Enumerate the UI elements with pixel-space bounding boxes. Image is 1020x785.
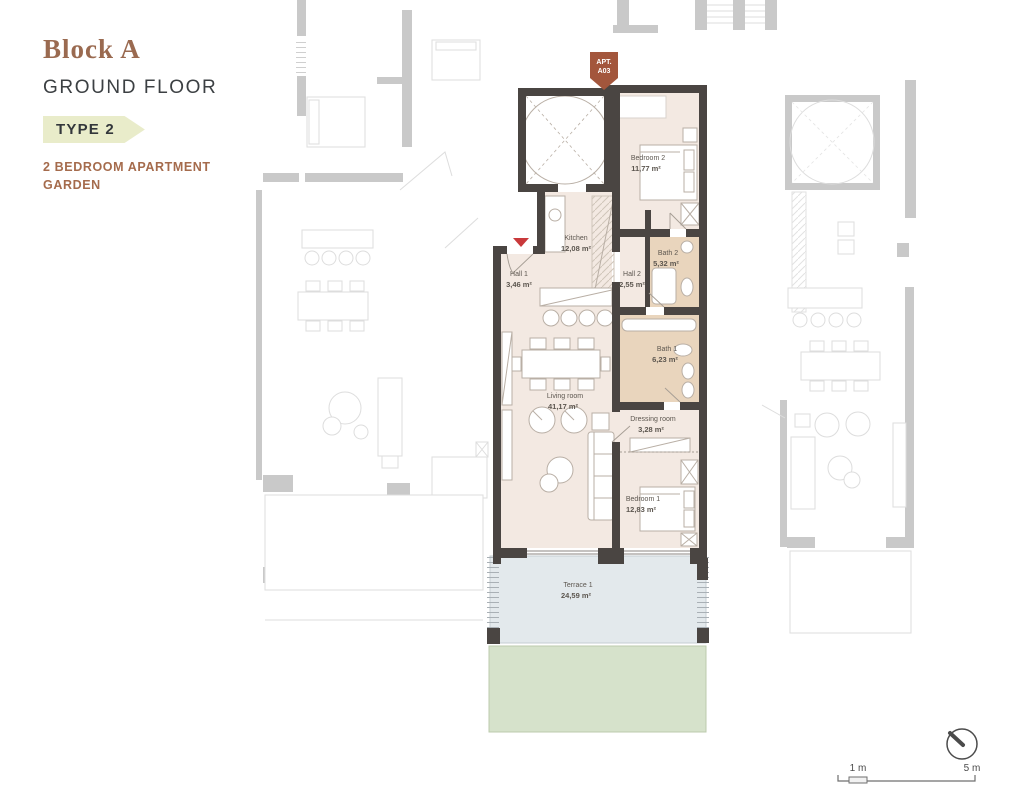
floorplan-page: { "header": { "block": "Block A", "floor… — [0, 0, 1020, 785]
room-area-bedroom2: 11,77 m² — [631, 164, 661, 173]
terrace-and-garden — [487, 556, 709, 732]
room-label-bath1: Bath 1 — [657, 346, 677, 353]
bedroom2-wardrobe — [681, 203, 699, 225]
scale-label-5m: 5 m — [964, 763, 981, 774]
room-area-hall2: 2,55 m² — [619, 280, 645, 289]
compass-icon — [947, 729, 977, 759]
room-area-bedroom1: 12,83 m² — [626, 505, 657, 514]
room-area-living: 41,17 m² — [548, 402, 579, 411]
room-area-dressing: 3,28 m² — [638, 425, 664, 434]
sofa — [588, 432, 614, 520]
room-label-hall2: Hall 2 — [623, 271, 641, 278]
room-area-hall1: 3,46 m² — [506, 280, 532, 289]
room-label-bath2: Bath 2 — [658, 250, 678, 257]
bar-stool — [597, 310, 613, 326]
garden-area — [489, 646, 706, 732]
room-label-living: Living room — [547, 393, 583, 400]
neighbor-left-furniture — [265, 40, 488, 620]
scale-bar: 1 m 5 m — [838, 763, 980, 783]
apartment-tag-line2: A03 — [598, 68, 611, 75]
bar-stool — [543, 310, 559, 326]
room-label-terrace: Terrace 1 — [563, 582, 592, 589]
bar-stool — [579, 310, 595, 326]
scale-label-1m: 1 m — [850, 763, 867, 774]
room-label-dressing: Dressing room — [630, 416, 676, 423]
floor-plan-canvas: Bedroom 2 11,77 m² Kitchen 12,08 m² Hall… — [0, 0, 1020, 785]
tv-bench — [502, 410, 512, 480]
bar-stool — [561, 310, 577, 326]
apartment-tag-line1: APT. — [596, 59, 611, 66]
terrace-floor — [490, 556, 706, 643]
apartment-tag: APT. A03 — [590, 52, 618, 90]
room-area-bath2: 5,32 m² — [653, 259, 679, 268]
neighbor-right-furniture — [762, 100, 911, 633]
room-label-bedroom1: Bedroom 1 — [626, 496, 660, 503]
side-table — [592, 413, 609, 430]
room-area-kitchen: 12,08 m² — [561, 244, 592, 253]
room-label-bedroom2: Bedroom 2 — [631, 155, 665, 162]
stairwell-floor — [526, 96, 604, 184]
room-area-bath1: 6,23 m² — [652, 355, 678, 364]
entrance-marker-icon — [513, 238, 529, 247]
room-label-hall1: Hall 1 — [510, 271, 528, 278]
room-area-terrace: 24,59 m² — [561, 591, 592, 600]
room-label-kitchen: Kitchen — [564, 235, 587, 242]
